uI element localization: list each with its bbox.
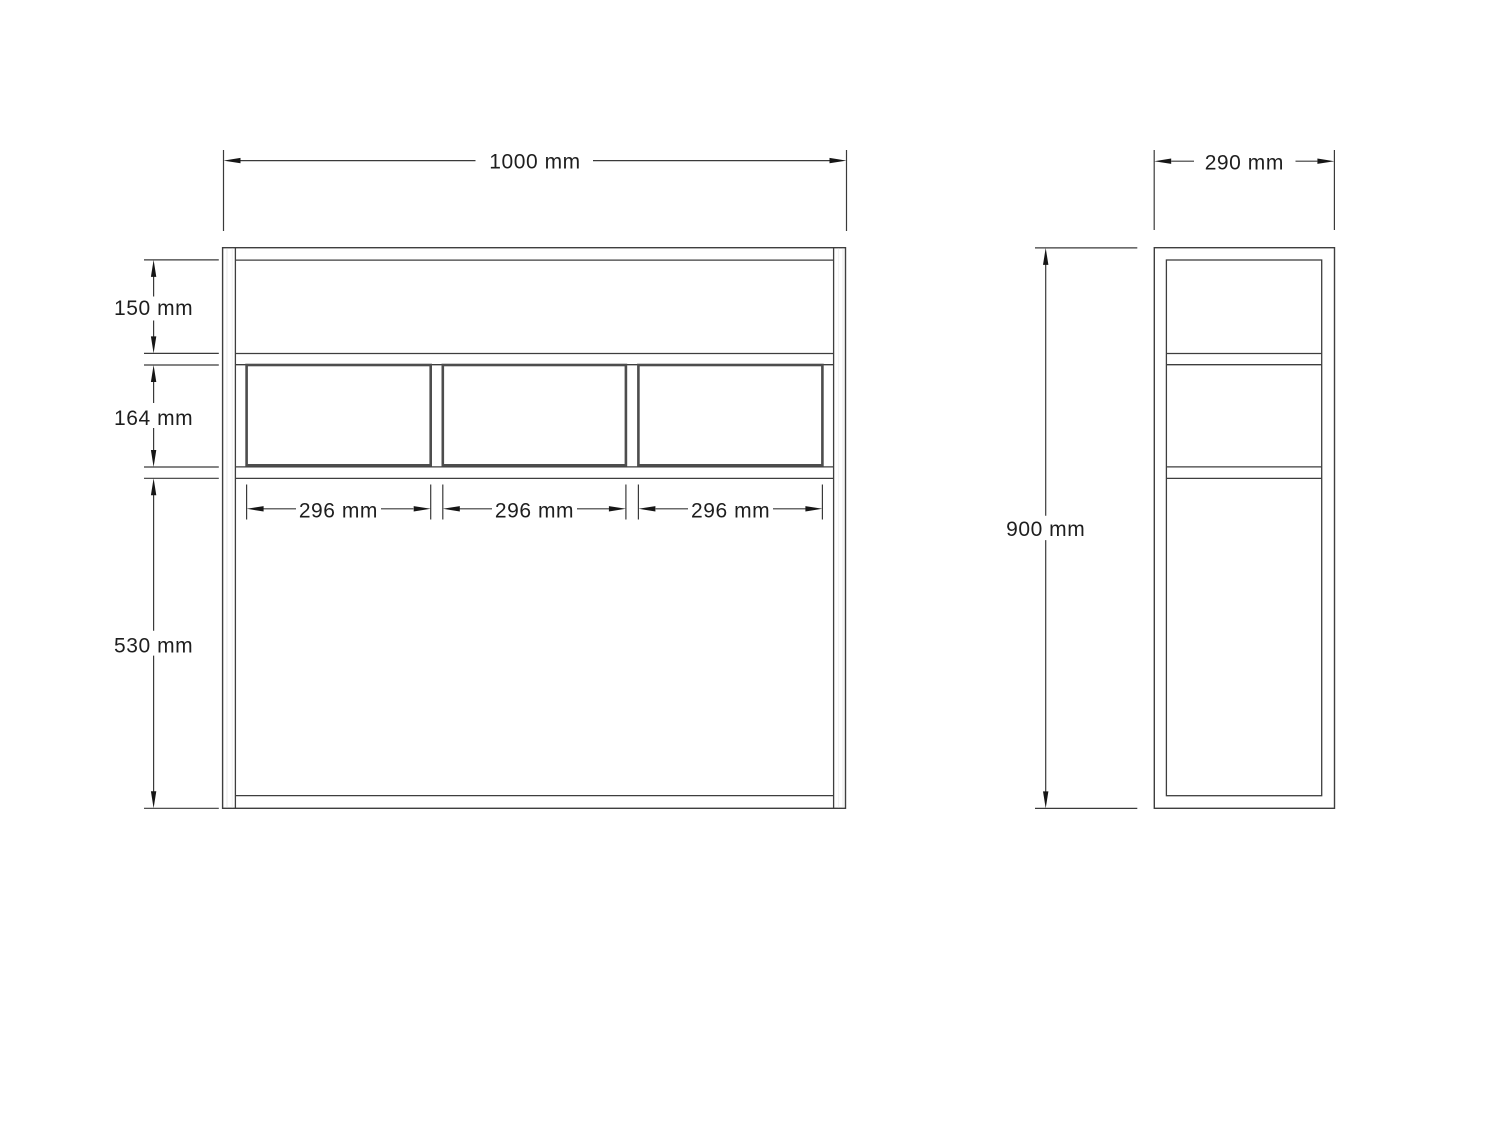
- svg-text:296 mm: 296 mm: [299, 499, 378, 522]
- svg-text:290 mm: 290 mm: [1205, 151, 1284, 174]
- svg-text:150 mm: 150 mm: [114, 297, 193, 320]
- svg-text:1000 mm: 1000 mm: [489, 151, 580, 174]
- svg-text:900 mm: 900 mm: [1006, 518, 1085, 541]
- svg-text:530 mm: 530 mm: [114, 634, 193, 657]
- svg-text:296 mm: 296 mm: [495, 499, 574, 522]
- svg-text:164 mm: 164 mm: [114, 407, 193, 430]
- svg-text:296 mm: 296 mm: [691, 499, 770, 522]
